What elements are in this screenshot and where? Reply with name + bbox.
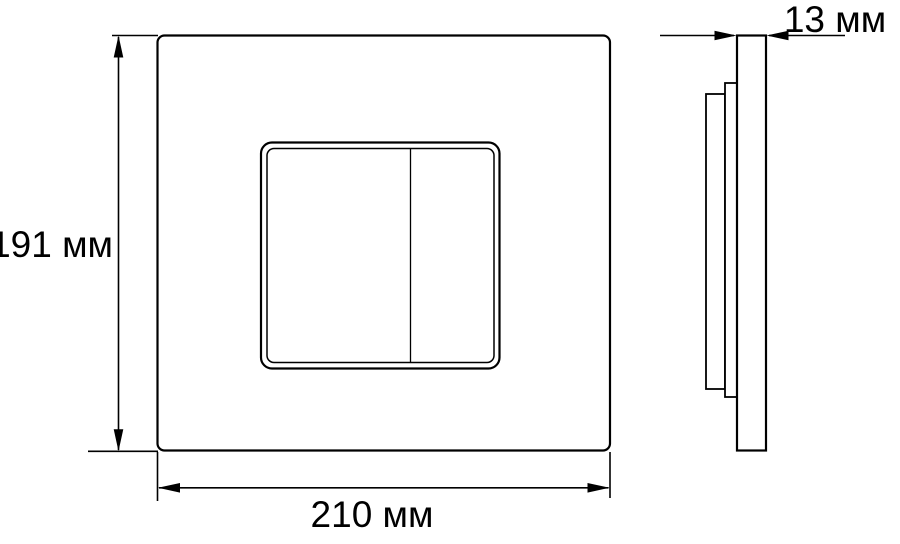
side-frame-back-outline [706, 94, 725, 389]
depth-dimension-label: 13 мм [784, 0, 886, 40]
width-dimension-label: 210 мм [311, 494, 434, 535]
height-dimension-label: 191 мм [0, 224, 113, 265]
height-arrow-down-icon [114, 429, 124, 451]
width-arrow-right-icon [588, 483, 610, 493]
plate-side-outline [737, 36, 766, 451]
front-view [158, 36, 611, 451]
height-dimension: 191 мм [0, 36, 158, 452]
button-panel-outer [261, 143, 500, 369]
side-profile-view [706, 36, 766, 451]
drawing-canvas: 191 мм 210 мм 13 мм [0, 0, 900, 544]
side-frame-middle-outline [725, 83, 737, 397]
width-dimension: 210 мм [158, 452, 611, 535]
height-arrow-up-icon [114, 36, 124, 58]
width-arrow-left-icon [158, 483, 180, 493]
technical-drawing: 191 мм 210 мм 13 мм [0, 0, 900, 544]
depth-dimension: 13 мм [660, 0, 886, 40]
depth-arrow-right-icon [715, 31, 737, 41]
